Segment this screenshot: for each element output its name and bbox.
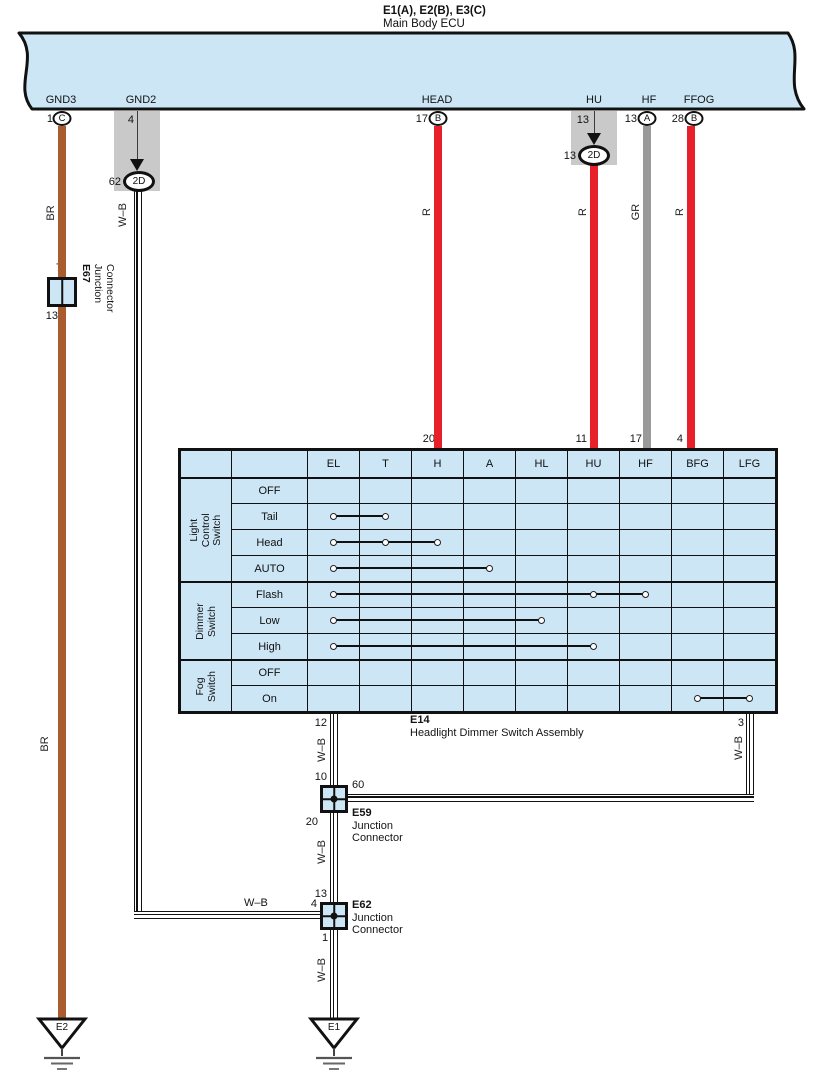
junction-e59-name: Junction Connector: [352, 820, 403, 845]
connection-terminal: [434, 539, 441, 546]
ecu-conn-ffog: FFOG: [684, 94, 715, 106]
junction-e62-pin-bottom: 1: [322, 932, 328, 944]
wiring-diagram: E1(A), E2(B), E3(C) Main Body ECU GND3 G…: [0, 0, 814, 1073]
connection-terminal: [330, 513, 337, 520]
junction-e59-pin-right: 60: [352, 779, 364, 791]
table-pin-hf: 17: [630, 433, 642, 445]
branch-line-gnd2: [137, 111, 139, 161]
connection-terminal: [590, 643, 597, 650]
connection-line: [697, 697, 749, 699]
pin-gnd2: 4: [128, 114, 134, 126]
branch-arrow-hu: [587, 133, 601, 145]
wire-label-br-lower: BR: [39, 736, 51, 751]
pin-ffog: 28: [672, 113, 684, 125]
pin-circle-ffog: B: [685, 111, 704, 126]
ecu-conn-head: HEAD: [422, 94, 453, 106]
connection-line: [333, 593, 645, 595]
branch-arrow-gnd2: [130, 159, 144, 171]
table-pin-el-out: 12: [315, 717, 327, 729]
wire-wb-e62-to-ground: [330, 930, 338, 1019]
connection-line: [333, 567, 489, 569]
connection-terminal: [642, 591, 649, 598]
ecu-conn-hu: HU: [586, 94, 602, 106]
ecu-title: E1(A), E2(B), E3(C) Main Body ECU: [383, 5, 486, 31]
assembly-e14-id: E14: [410, 714, 430, 726]
pin-hf: 13: [625, 113, 637, 125]
connection-terminal: [330, 565, 337, 572]
junction-e67: [47, 277, 77, 307]
branch-pin-hu: 13: [564, 150, 576, 162]
junction-e67-label: E67 Junction Connector: [80, 264, 116, 312]
pin-circle-gnd3: C: [53, 111, 72, 126]
connection-terminal: [330, 617, 337, 624]
ecu-conn-gnd2: GND2: [126, 94, 157, 106]
wire-label-wb-horizontal: W–B: [244, 897, 268, 909]
wire-label-wb-gnd2: W–B: [117, 203, 129, 227]
wire-wb-el-to-e59: [330, 714, 338, 785]
switch-table: ELTHAHLHUHFBFGLFGLight Control SwitchOFF…: [178, 448, 778, 714]
connection-terminal: [330, 539, 337, 546]
wire-wb-gnd2-down: [134, 191, 142, 919]
ecu-conn-gnd3: GND3: [46, 94, 77, 106]
connection-terminal: [330, 591, 337, 598]
connection-line: [333, 619, 541, 621]
table-pin-hu: 11: [576, 433, 587, 445]
wire-label-gr-hf: GR: [630, 204, 642, 221]
wire-wb-e59-to-e62: [330, 812, 338, 903]
ecu-title-line2: Main Body ECU: [383, 18, 486, 31]
connection-terminal: [590, 591, 597, 598]
connection-terminal: [382, 539, 389, 546]
connection-terminal: [382, 513, 389, 520]
pin-circle-head: B: [429, 111, 448, 126]
wire-r-ffog: [687, 126, 695, 448]
branch-pin-gnd2: 62: [109, 176, 121, 188]
connection-terminal: [330, 643, 337, 650]
junction-e62-dot: [331, 913, 338, 920]
pin-head: 17: [416, 113, 428, 125]
junction-e59-id: E59: [352, 807, 372, 819]
wire-r-head: [434, 126, 442, 448]
wire-label-r-ffog: R: [674, 208, 686, 216]
junction-e59-label: E59 Junction Connector: [352, 807, 403, 845]
ground-e1-label: E1: [328, 1022, 341, 1033]
connection-line: [333, 645, 593, 647]
ecu-conn-hf: HF: [642, 94, 657, 106]
wire-gr-hf: [643, 126, 651, 448]
switch-connections: [181, 451, 775, 711]
wire-wb-gnd2-to-e62: [134, 911, 322, 919]
junction-e62-pin-left: 4: [311, 898, 317, 910]
junction-e67-divider: [61, 279, 63, 305]
table-pin-bfg: 4: [677, 433, 683, 445]
wire-label-br-upper: BR: [45, 205, 57, 220]
wire-label-r-head: R: [421, 208, 433, 216]
ground-e2: E2: [36, 1016, 88, 1072]
assembly-e14-name: Headlight Dimmer Switch Assembly: [410, 727, 584, 739]
branch-connector-2d-hu: 2D: [578, 145, 610, 166]
junction-e59-pin-bottom: 20: [306, 816, 318, 828]
assembly-e14-label: E14 Headlight Dimmer Switch Assembly: [410, 714, 584, 739]
branch-line-hu: [594, 111, 596, 135]
wire-label-wb-el: W–B: [316, 738, 328, 762]
table-pin-lfg-out: 3: [738, 717, 744, 729]
junction-e62: [320, 902, 348, 930]
junction-e67-pin-bottom: 13: [46, 310, 58, 322]
wire-label-wb-e59: W–B: [316, 840, 328, 864]
wire-label-wb-e62: W–B: [316, 958, 328, 982]
pin-circle-hf: A: [638, 111, 657, 126]
junction-e67-name: Junction Connector: [92, 264, 116, 312]
branch-connector-2d-gnd2: 2D: [123, 171, 155, 192]
wire-br-gnd3: [58, 126, 66, 1019]
ground-e1: E1: [308, 1016, 360, 1072]
wire-label-wb-lfg: W–B: [733, 736, 745, 760]
junction-e59-pin-top: 10: [315, 771, 327, 783]
wire-r-hu: [590, 165, 598, 448]
junction-e59: [320, 785, 348, 813]
connection-terminal: [694, 695, 701, 702]
ground-e2-label: E2: [56, 1022, 69, 1033]
wire-wb-e59-to-lfg: [347, 794, 754, 802]
junction-e59-dot: [331, 796, 338, 803]
junction-e62-id: E62: [352, 899, 372, 911]
pin-hu: 13: [577, 114, 589, 126]
connection-terminal: [486, 565, 493, 572]
junction-e62-name: Junction Connector: [352, 912, 403, 937]
ecu-title-line1: E1(A), E2(B), E3(C): [383, 5, 486, 18]
junction-e67-id: E67: [80, 264, 92, 283]
wire-label-r-hu: R: [577, 208, 589, 216]
connection-terminal: [746, 695, 753, 702]
connection-line: [333, 515, 385, 517]
wire-wb-lfg-down: [746, 714, 754, 802]
junction-e62-label: E62 Junction Connector: [352, 899, 403, 937]
connection-terminal: [538, 617, 545, 624]
